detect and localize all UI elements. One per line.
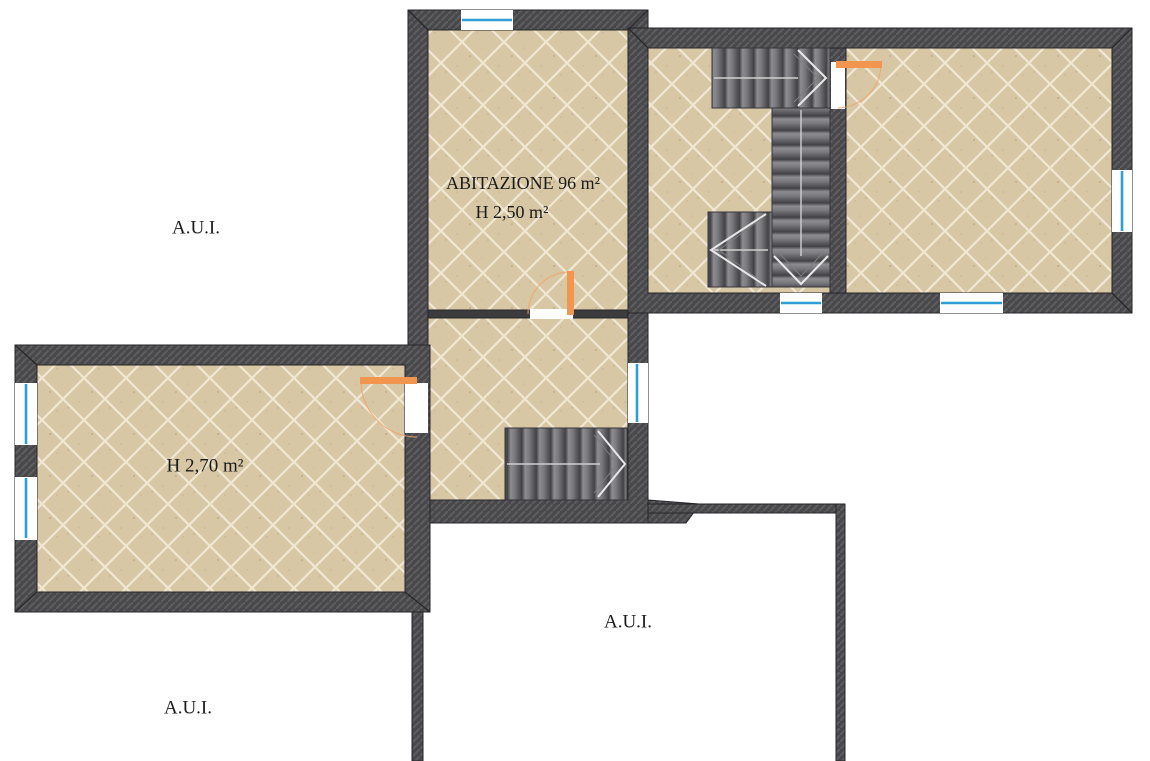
left-room-height-label: H 2,70 m² (167, 456, 244, 477)
window-icon (780, 293, 822, 313)
floor-plan-canvas: ABITAZIONE 96 m² H 2,50 m² H 2,70 m² A.U… (0, 0, 1150, 761)
aui-boundary-wall-right (836, 504, 845, 761)
staircase-lower (505, 428, 627, 500)
aui-upper-left-label: A.U.I. (172, 218, 220, 239)
window-icon (461, 10, 513, 30)
floor-plan-drawing: ABITAZIONE 96 m² H 2,50 m² H 2,70 m² A.U… (0, 0, 1150, 761)
aui-boundary-wall-horizontal (648, 504, 845, 513)
window-icon (15, 477, 37, 540)
window-icon (15, 383, 37, 445)
window-icon (628, 363, 648, 423)
aui-center-label: A.U.I. (604, 612, 652, 633)
left-room-floor (37, 365, 405, 592)
right-room-floor (846, 48, 1112, 293)
aui-lower-left-label: A.U.I. (164, 698, 212, 719)
aui-boundary-wall-left (412, 612, 423, 761)
window-icon (940, 293, 1003, 313)
window-icon (1112, 170, 1132, 232)
abitazione-height-label: H 2,50 m² (476, 202, 549, 222)
abitazione-area-label: ABITAZIONE 96 m² (446, 173, 600, 193)
